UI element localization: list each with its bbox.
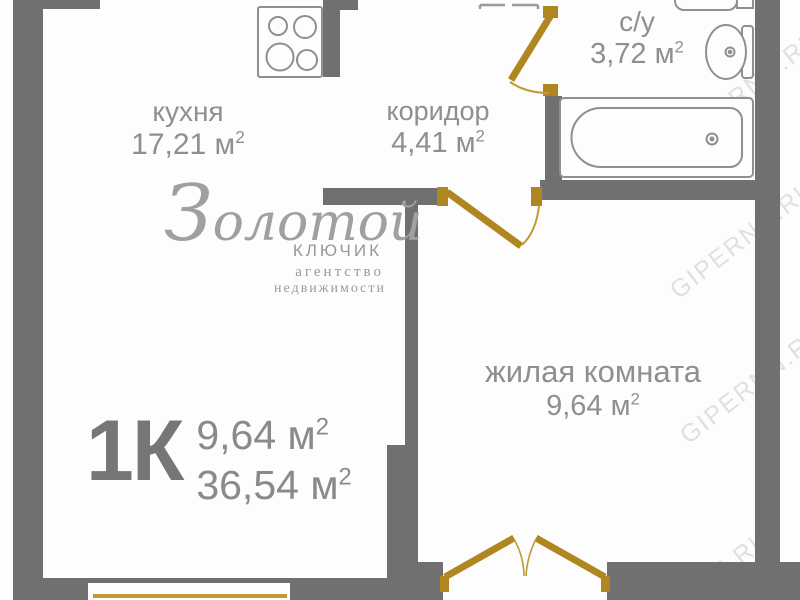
agency-logo-line3: агентство — [158, 264, 384, 281]
sink-icon — [675, 0, 753, 10]
floor-plan: GIPERNN.RU GIPERNN.RU GIPERNN.RU GIPERNN… — [0, 0, 800, 600]
corridor-label: коридор 4,41 м2 — [386, 96, 489, 160]
living-room-area: 9,64 м2 — [485, 390, 701, 423]
bathroom-label: с/у 3,72 м2 — [590, 6, 684, 72]
corridor-name: коридор — [386, 96, 489, 127]
apartment-summary: 1К 9,64 м2 36,54 м2 — [86, 408, 352, 510]
kitchen-name: кухня — [131, 96, 245, 128]
kitchen-area: 17,21 м2 — [131, 128, 245, 163]
living-room-name: жилая комната — [485, 354, 701, 390]
summary-total-area: 36,54 м2 — [196, 460, 351, 510]
bathtub-icon — [560, 98, 753, 177]
bathroom-door-swing-icon — [510, 15, 551, 93]
bathroom-area: 3,72 м2 — [590, 38, 684, 71]
toilet-icon — [706, 25, 753, 79]
entry-dash-icon — [480, 5, 538, 9]
bathroom-name: с/у — [590, 6, 684, 38]
agency-logo-name: Золотой — [164, 200, 386, 247]
apartment-type: 1К — [86, 408, 182, 494]
living-door-swing-icon — [447, 192, 539, 246]
balcony-door-swing-icon — [445, 538, 605, 577]
living-room-label: жилая комната 9,64 м2 — [485, 354, 701, 423]
agency-logo-line4: недвижимости — [158, 281, 386, 297]
kitchen-label: кухня 17,21 м2 — [131, 96, 245, 163]
stove-icon — [258, 7, 322, 77]
summary-living-area: 9,64 м2 — [196, 410, 351, 460]
corridor-area: 4,41 м2 — [386, 127, 489, 160]
agency-logo: Золотой КЛЮЧИК агентство недвижимости — [158, 200, 386, 297]
